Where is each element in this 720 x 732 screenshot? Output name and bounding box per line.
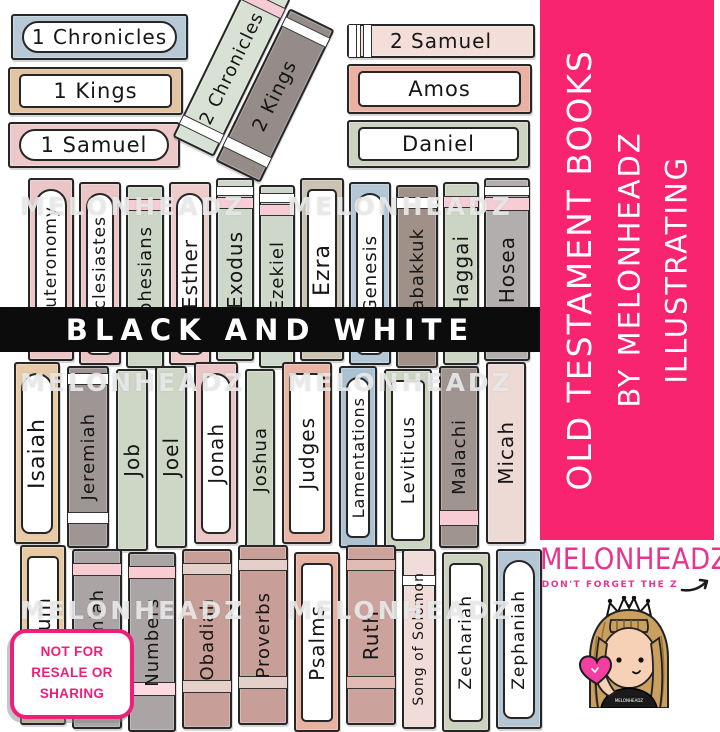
sidebar-line-2: BY MELONHEADZ (607, 49, 654, 491)
spine-band (183, 680, 231, 693)
book-spine: Joel (155, 366, 187, 548)
book-title: Joshua (250, 427, 271, 493)
book-spine: Malachi (439, 366, 479, 548)
book-title: Song of Solomon (411, 572, 427, 706)
book-spine: 1 Chronicles (11, 14, 188, 60)
spine-band (217, 197, 253, 209)
book-title: Isaiah (25, 418, 50, 489)
book-spine: Jonah (194, 362, 238, 544)
spine-label: Jonah (201, 373, 231, 534)
book-spine: 1 Kings (8, 67, 183, 115)
book-spine: Judges (282, 362, 332, 544)
book-spine: Obadiah (182, 549, 232, 729)
spine-label: Daniel (358, 127, 519, 161)
spine-band (440, 510, 478, 526)
book-spine: Job (116, 369, 148, 551)
spine-label: Zechariah (449, 563, 483, 722)
book-title: Micah (494, 421, 518, 485)
spine-band (239, 559, 287, 571)
title-sidebar: OLD TESTAMENT BOOKS BY MELONHEADZ ILLUST… (540, 0, 714, 540)
top-right-book-stack: 2 SamuelAmosDaniel (347, 24, 535, 168)
banner-text: BLACK AND WHITE (66, 313, 475, 347)
spine-label: Isaiah (21, 373, 53, 534)
book-title: Esther (178, 239, 202, 309)
tagline-text: DON'T FORGET THE Z (542, 580, 679, 590)
spine-band (363, 25, 372, 57)
spine-band (73, 563, 121, 576)
book-title: 1 Samuel (41, 133, 148, 157)
book-spine: 1 Samuel (8, 122, 180, 168)
book-spine: Psalms (294, 552, 340, 732)
book-title: Zechariah (456, 595, 476, 690)
spine-label: Leviticus (391, 380, 425, 541)
book-title: Jeremiah (78, 413, 99, 500)
book-title: Ezekiel (267, 241, 288, 311)
book-title: Judges (295, 417, 319, 490)
not-for-resale-badge: NOT FOR RESALE OR SHARING (10, 629, 134, 719)
logo-tagline: DON'T FORGET THE Z (540, 576, 716, 594)
book-spine: Leviticus (384, 369, 432, 551)
badge-line-1: NOT FOR (18, 642, 126, 663)
spine-band (260, 204, 294, 216)
badge-line-3: SHARING (18, 684, 126, 705)
book-title: Genesis (360, 235, 381, 313)
book-spine: Proverbs (238, 545, 288, 725)
top-left-book-stack: 1 Chronicles1 Kings1 Samuel (8, 14, 188, 168)
spine-band (68, 512, 108, 524)
book-title: Ezra (310, 244, 335, 296)
book-title: Exodus (223, 231, 247, 309)
book-title: Leviticus (398, 416, 419, 504)
spine-band (217, 186, 253, 196)
book-title: Lamentations (349, 397, 368, 518)
book-title: Ruth (359, 610, 383, 660)
book-title: Joel (159, 437, 183, 477)
spine-label: 1 Samuel (19, 129, 169, 161)
book-title: Proverbs (253, 592, 274, 679)
spine-band (347, 559, 395, 571)
book-title: Daniel (402, 132, 475, 156)
spine-label: 1 Chronicles (22, 21, 177, 53)
book-title: 2 Samuel (390, 29, 492, 53)
spine-band (347, 676, 395, 689)
book-title: Amos (408, 77, 471, 101)
book-spine: 2 Samuel (347, 24, 535, 58)
book-title: Malachi (449, 419, 470, 495)
book-spine: Lamentations (339, 366, 377, 548)
spine-band (282, 17, 330, 48)
book-title: Job (120, 443, 144, 477)
book-title: 1 Chronicles (32, 25, 167, 49)
book-spine: Amos (347, 64, 532, 114)
book-spine: Ruth (346, 545, 396, 725)
book-spine: Zechariah (442, 552, 490, 732)
melonheadz-character: MELONHEADZ (567, 596, 689, 708)
spine-band (348, 25, 357, 57)
sidebar-line-3: ILLUSTRATING (654, 49, 701, 491)
badge-line-2: RESALE OR (18, 663, 126, 684)
spine-label: Lamentations (346, 377, 370, 538)
spine-label: Amos (358, 71, 521, 107)
spine-label: Zephaniah (503, 560, 535, 719)
shirt-text: MELONHEADZ (615, 698, 644, 703)
book-title: Zephaniah (509, 590, 529, 690)
spine-band (260, 193, 294, 203)
spine-label: Psalms (301, 563, 333, 722)
book-title: Hosea (495, 236, 519, 303)
book-spine: Numbers (128, 552, 176, 732)
book-title: Numbers (142, 598, 163, 687)
book-title: Haggai (449, 235, 473, 312)
book-spine: Isaiah (14, 362, 60, 544)
spine-band (444, 196, 478, 208)
spine-label: 1 Kings (19, 74, 172, 108)
book-spine: Song of Solomon (402, 549, 436, 729)
book-title: Psalms (305, 605, 329, 681)
clipart-preview-page: 1 Chronicles1 Kings1 Samuel 2 Chronicles… (0, 0, 720, 720)
spine-band (127, 199, 163, 211)
black-and-white-banner: BLACK AND WHITE (0, 307, 541, 352)
logo-wordmark: MELONHEADZ (540, 543, 716, 577)
book-title: 1 Kings (53, 79, 137, 103)
book-title: Jonah (204, 423, 228, 484)
diagonal-book-pair: 2 Chronicles2 Kings (169, 0, 343, 189)
sidebar-line-1: OLD TESTAMENT BOOKS (553, 49, 606, 491)
book-spine: Daniel (347, 120, 530, 168)
book-spine: Zephaniah (496, 549, 542, 729)
spine-band (397, 197, 437, 209)
melonheadz-logo-block: MELONHEADZ DON'T FORGET THE Z (540, 545, 716, 708)
book-spine: Joshua (245, 369, 275, 551)
spine-band (68, 373, 108, 385)
arrow-icon (680, 576, 714, 594)
spine-band (129, 566, 175, 579)
sidebar-title: OLD TESTAMENT BOOKS BY MELONHEADZ ILLUST… (553, 49, 700, 491)
bookshelf-row-2: IsaiahJeremiahJobJoelJonahJoshuaJudgesLa… (14, 362, 526, 544)
spine-band (183, 563, 231, 575)
spine-label: Judges (289, 373, 325, 534)
spine-band (485, 197, 529, 211)
book-spine: Micah (486, 362, 526, 544)
spine-band (223, 136, 271, 168)
book-spine: Jeremiah (67, 366, 109, 548)
book-title: Obadiah (197, 598, 218, 681)
spine-band (485, 186, 529, 196)
